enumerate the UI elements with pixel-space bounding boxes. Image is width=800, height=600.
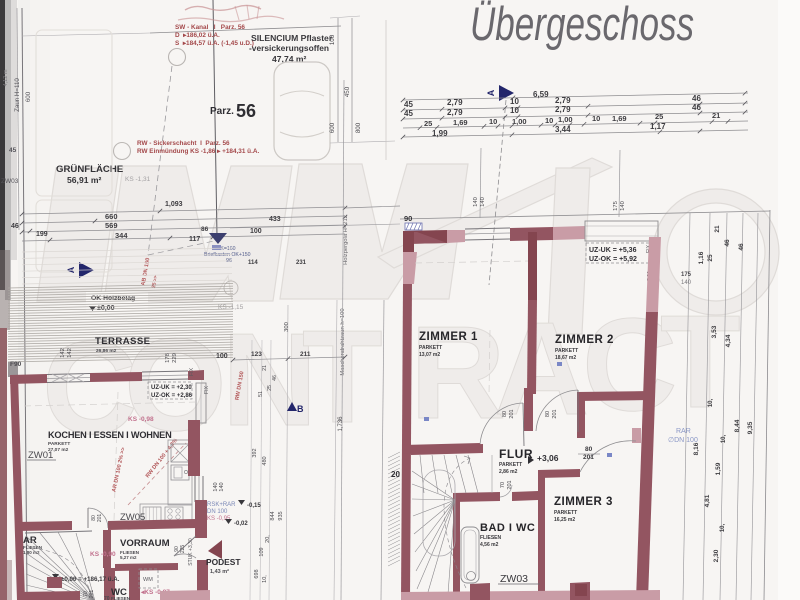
svg-text:844: 844 bbox=[270, 511, 276, 520]
svg-text:ZIMMER 1: ZIMMER 1 bbox=[419, 331, 478, 343]
svg-text:1,00: 1,00 bbox=[512, 117, 527, 126]
svg-text:201: 201 bbox=[552, 409, 558, 418]
svg-text:R: R bbox=[410, 299, 505, 446]
svg-text:392: 392 bbox=[252, 448, 258, 457]
svg-text:FLIESEN: FLIESEN bbox=[480, 535, 502, 541]
svg-text:PARKETT: PARKETT bbox=[555, 348, 578, 354]
svg-text:SW - Kanal I Parz. 56: SW - Kanal I Parz. 56 bbox=[175, 24, 245, 31]
svg-text:6,59: 6,59 bbox=[533, 90, 549, 99]
svg-text:25: 25 bbox=[267, 385, 273, 391]
svg-text:1,43 m²: 1,43 m² bbox=[210, 568, 229, 575]
svg-text:A: A bbox=[66, 266, 76, 273]
svg-text:RW Einmündung KS -1,86 ▸ +184,: RW Einmündung KS -1,86 ▸ +184,31 ü.A. bbox=[137, 148, 259, 155]
svg-text:10,: 10, bbox=[708, 398, 714, 407]
svg-text:KS -0,98: KS -0,98 bbox=[128, 416, 154, 423]
svg-text:2,79: 2,79 bbox=[555, 105, 571, 114]
svg-text:KS -1,31: KS -1,31 bbox=[125, 176, 151, 183]
svg-text:56: 56 bbox=[236, 101, 256, 121]
svg-text:109: 109 bbox=[259, 547, 265, 556]
svg-text:175: 175 bbox=[681, 272, 692, 278]
svg-text:80: 80 bbox=[502, 411, 508, 417]
svg-text:10,: 10, bbox=[721, 434, 727, 443]
svg-text:10: 10 bbox=[489, 117, 497, 126]
svg-text:20,: 20, bbox=[265, 535, 271, 543]
svg-text:70: 70 bbox=[500, 482, 506, 488]
svg-text:25: 25 bbox=[655, 112, 663, 121]
svg-text:D ▸186,02 ü.A.: D ▸186,02 ü.A. bbox=[175, 32, 220, 39]
svg-text:1,59: 1,59 bbox=[715, 462, 722, 475]
svg-text:140: 140 bbox=[681, 280, 692, 286]
svg-text:ZW01: ZW01 bbox=[28, 450, 53, 461]
svg-text:FLIESEN: FLIESEN bbox=[111, 596, 130, 600]
svg-text:178: 178 bbox=[165, 353, 171, 363]
svg-text:8,44: 8,44 bbox=[734, 419, 741, 432]
svg-text:TERRASSE: TERRASSE bbox=[95, 336, 151, 347]
svg-text:45: 45 bbox=[404, 109, 413, 118]
svg-text:2,30: 2,30 bbox=[713, 549, 720, 562]
svg-text:4,81: 4,81 bbox=[704, 494, 711, 507]
svg-text:10: 10 bbox=[510, 97, 519, 106]
svg-text:100: 100 bbox=[250, 228, 262, 235]
svg-text:4,56 m2: 4,56 m2 bbox=[480, 542, 499, 548]
svg-text:UZ-OK = +2,86: UZ-OK = +2,86 bbox=[151, 393, 193, 399]
svg-text:PARKETT: PARKETT bbox=[48, 441, 70, 447]
svg-text:140: 140 bbox=[480, 197, 486, 207]
svg-text:A: A bbox=[494, 295, 589, 442]
svg-text:1,00: 1,00 bbox=[558, 115, 573, 124]
svg-text:2,79: 2,79 bbox=[447, 108, 463, 117]
svg-text:ZW03: ZW03 bbox=[500, 573, 528, 585]
svg-text:KS -1,15: KS -1,15 bbox=[218, 304, 244, 311]
svg-text:1,736: 1,736 bbox=[338, 416, 344, 432]
svg-text:PODEST: PODEST bbox=[206, 557, 241, 567]
svg-text:PARKETT: PARKETT bbox=[499, 462, 522, 468]
svg-text:8,16: 8,16 bbox=[693, 442, 700, 455]
svg-text:+3,06: +3,06 bbox=[537, 453, 559, 463]
svg-text:1,99: 1,99 bbox=[432, 129, 448, 138]
svg-text:UZ-UK = +5,36: UZ-UK = +5,36 bbox=[589, 247, 637, 254]
svg-text:VORRAUM: VORRAUM bbox=[120, 538, 170, 549]
svg-text:10,: 10, bbox=[262, 575, 268, 583]
svg-text:1,69: 1,69 bbox=[453, 118, 468, 127]
svg-text:114: 114 bbox=[248, 260, 258, 266]
svg-text:A: A bbox=[486, 89, 496, 96]
svg-text:46: 46 bbox=[272, 375, 278, 381]
svg-text:GRÜNFLÄCHE: GRÜNFLÄCHE bbox=[56, 164, 124, 175]
svg-text:5,27 m2: 5,27 m2 bbox=[120, 555, 137, 560]
svg-text:201: 201 bbox=[89, 590, 95, 599]
svg-text:86: 86 bbox=[201, 226, 209, 233]
svg-text:231: 231 bbox=[296, 260, 307, 266]
svg-text:480: 480 bbox=[262, 456, 268, 465]
svg-text:26,86 m2: 26,86 m2 bbox=[96, 348, 117, 354]
svg-text:3,53: 3,53 bbox=[711, 325, 718, 338]
svg-text:123: 123 bbox=[251, 351, 262, 358]
svg-text:T: T bbox=[660, 288, 741, 435]
svg-text:RW - Sickerschacht I Parz. 5: RW - Sickerschacht I Parz. 56 bbox=[137, 140, 230, 147]
svg-text:600: 600 bbox=[25, 91, 32, 102]
svg-text:1,17: 1,17 bbox=[650, 122, 666, 131]
svg-text:-0,02: -0,02 bbox=[234, 521, 248, 527]
svg-text:600: 600 bbox=[329, 122, 336, 133]
svg-text:18,67 m2: 18,67 m2 bbox=[555, 355, 576, 361]
svg-text:211: 211 bbox=[300, 351, 311, 358]
svg-text:1,093: 1,093 bbox=[165, 201, 183, 208]
svg-text:10: 10 bbox=[545, 116, 553, 125]
svg-text:935: 935 bbox=[278, 511, 284, 520]
svg-text:46: 46 bbox=[738, 243, 745, 251]
svg-text:∅DN 100: ∅DN 100 bbox=[668, 437, 698, 444]
svg-text:UZ-OK = +5,92: UZ-OK = +5,92 bbox=[589, 256, 637, 263]
svg-text:RSK+RAR: RSK+RAR bbox=[207, 502, 236, 508]
svg-text:25: 25 bbox=[707, 254, 714, 262]
svg-text:201: 201 bbox=[509, 409, 515, 418]
svg-text:ZIMMER 2: ZIMMER 2 bbox=[555, 334, 614, 346]
svg-text:UZ-UK = +2,30: UZ-UK = +2,30 bbox=[151, 385, 192, 391]
svg-text:344: 344 bbox=[115, 231, 128, 240]
svg-text:140: 140 bbox=[219, 482, 225, 491]
svg-text:Übergeschoss: Übergeschoss bbox=[470, 0, 694, 50]
svg-text:2,79: 2,79 bbox=[555, 96, 571, 105]
svg-text:21: 21 bbox=[712, 111, 720, 120]
svg-text:4,34: 4,34 bbox=[725, 334, 732, 347]
svg-text:-versickerungsoffen: -versickerungsoffen bbox=[249, 43, 329, 53]
svg-text:PARKETT: PARKETT bbox=[554, 510, 577, 516]
svg-text:Maschendrahtzaun h=100: Maschendrahtzaun h=100 bbox=[340, 308, 346, 375]
svg-text:140: 140 bbox=[473, 197, 479, 207]
svg-text:100: 100 bbox=[329, 34, 336, 45]
svg-text:51: 51 bbox=[258, 391, 264, 397]
svg-text:201: 201 bbox=[583, 454, 594, 461]
svg-text:FLUR: FLUR bbox=[499, 447, 533, 461]
svg-text:KOCHEN I ESSEN I WOHNEN: KOCHEN I ESSEN I WOHNEN bbox=[48, 430, 172, 440]
svg-text:BAD I WC: BAD I WC bbox=[480, 522, 535, 534]
svg-text:16,25 m2: 16,25 m2 bbox=[554, 517, 575, 523]
svg-text:±0,00 = +186,17 ü.A.: ±0,00 = +186,17 ü.A. bbox=[61, 576, 120, 583]
svg-text:2,79: 2,79 bbox=[447, 98, 463, 107]
svg-text:46: 46 bbox=[11, 223, 19, 230]
svg-text:STUK +3,30: STUK +3,30 bbox=[188, 538, 194, 566]
svg-text:SILENCIUM Pflaster: SILENCIUM Pflaster bbox=[251, 33, 333, 43]
svg-text:660: 660 bbox=[105, 212, 118, 221]
svg-text:10: 10 bbox=[592, 114, 600, 123]
svg-text:WM: WM bbox=[143, 577, 153, 583]
svg-text:PARKETT: PARKETT bbox=[419, 345, 442, 351]
svg-text:ZIMMER 3: ZIMMER 3 bbox=[554, 496, 613, 508]
svg-text:S ▸184,57 ü.A. (-1,45 u.D.): S ▸184,57 ü.A. (-1,45 u.D.) bbox=[175, 40, 254, 47]
svg-text:-0,15: -0,15 bbox=[247, 503, 261, 509]
svg-text:300: 300 bbox=[284, 322, 290, 332]
svg-text:80: 80 bbox=[585, 446, 593, 453]
svg-text:21: 21 bbox=[262, 365, 268, 371]
svg-text:21: 21 bbox=[714, 225, 721, 233]
svg-text:10,: 10, bbox=[720, 523, 726, 532]
svg-text:1,69: 1,69 bbox=[612, 114, 627, 123]
svg-text:56,91 m²: 56,91 m² bbox=[67, 175, 102, 185]
svg-text:100: 100 bbox=[216, 353, 228, 360]
svg-text:698: 698 bbox=[254, 569, 260, 578]
svg-text:201: 201 bbox=[507, 480, 513, 489]
svg-text:F90: F90 bbox=[10, 361, 22, 368]
svg-text:DN 100: DN 100 bbox=[207, 509, 228, 515]
svg-text:142: 142 bbox=[67, 348, 73, 358]
svg-text:45: 45 bbox=[404, 100, 413, 109]
svg-text:80: 80 bbox=[545, 411, 551, 417]
svg-text:90: 90 bbox=[404, 214, 412, 223]
svg-text:70: 70 bbox=[104, 596, 110, 600]
svg-text:45: 45 bbox=[9, 147, 17, 154]
svg-text:ZW03: ZW03 bbox=[1, 178, 19, 185]
svg-text:46: 46 bbox=[692, 94, 701, 103]
svg-text:Holzpergola H=212: Holzpergola H=212 bbox=[343, 215, 349, 265]
svg-text:46: 46 bbox=[724, 239, 731, 247]
svg-text:229: 229 bbox=[172, 353, 178, 363]
svg-text:142: 142 bbox=[60, 348, 66, 358]
svg-text:B: B bbox=[297, 404, 304, 414]
svg-text:175: 175 bbox=[613, 201, 619, 211]
svg-text:20: 20 bbox=[391, 470, 400, 479]
svg-text:RAR: RAR bbox=[676, 428, 691, 435]
svg-text:201: 201 bbox=[97, 514, 103, 523]
svg-text:KS -0,90: KS -0,90 bbox=[90, 551, 116, 558]
svg-text:Parz.: Parz. bbox=[210, 106, 234, 117]
svg-text:225: 225 bbox=[180, 545, 186, 554]
svg-text:13,07 m2: 13,07 m2 bbox=[419, 352, 440, 358]
svg-text:1,80 m2: 1,80 m2 bbox=[23, 550, 40, 555]
svg-text:25: 25 bbox=[424, 119, 432, 128]
svg-text:1,16: 1,16 bbox=[698, 251, 705, 264]
svg-text:117: 117 bbox=[189, 236, 200, 243]
svg-text:800: 800 bbox=[355, 122, 362, 133]
svg-text:FIX: FIX bbox=[189, 367, 195, 376]
svg-text:9,35: 9,35 bbox=[747, 421, 754, 434]
svg-text:Zaun H=110: Zaun H=110 bbox=[14, 78, 21, 112]
svg-text:433: 433 bbox=[269, 216, 281, 223]
svg-text:569: 569 bbox=[105, 221, 118, 230]
svg-text:2,86 m2: 2,86 m2 bbox=[499, 469, 518, 475]
svg-text:199: 199 bbox=[36, 231, 48, 238]
svg-text:450: 450 bbox=[344, 86, 351, 97]
svg-text:FIX: FIX bbox=[204, 385, 210, 394]
svg-text:4,12 m: 4,12 m bbox=[3, 69, 9, 86]
svg-text:140: 140 bbox=[620, 201, 626, 211]
